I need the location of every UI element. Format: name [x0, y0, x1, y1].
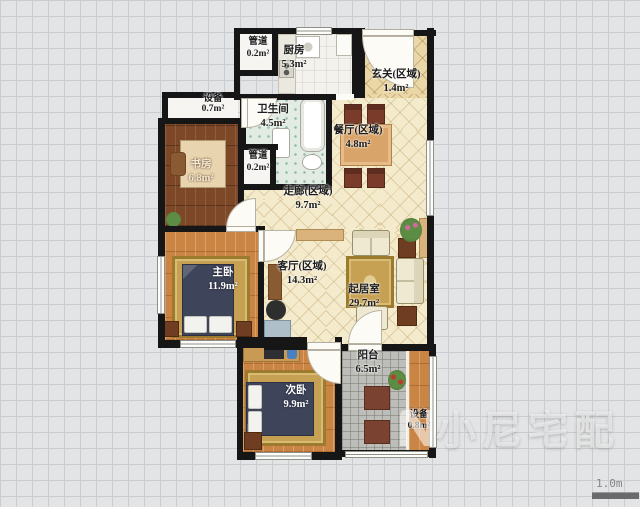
dining-chair — [367, 104, 385, 124]
wall — [237, 337, 243, 460]
balcony-plant — [388, 370, 406, 390]
room-name: 卫生间 — [248, 103, 298, 117]
room-label-balcony: 阳台 6.5m² — [346, 349, 390, 376]
watermark: 小尼宅配 — [394, 398, 620, 456]
room-label-living-room: 起居室 29.7m² — [338, 283, 390, 310]
room-label-bathroom: 卫生间 4.5m² — [248, 103, 298, 130]
window — [426, 140, 434, 216]
room-area: 4.5m² — [248, 117, 298, 131]
room-area: 14.3m² — [268, 274, 336, 288]
room-label-corridor: 走廊(区域) 9.7m² — [278, 185, 338, 212]
kitchen-cabinet — [336, 34, 352, 56]
room-area: 4.8m² — [328, 138, 388, 152]
master-pillow-right — [209, 316, 232, 333]
room-area: 6.5m² — [346, 363, 390, 377]
study-door-leaf — [226, 226, 256, 232]
room-name: 设备 — [190, 94, 236, 104]
room-area: 11.9m² — [198, 280, 248, 294]
sofa-two-seat — [352, 230, 390, 256]
watermark-logo-icon — [394, 406, 432, 448]
scale-label: 1.0m — [596, 477, 623, 490]
sofa-three-seat — [396, 258, 424, 304]
scale-bar — [592, 492, 639, 499]
room-label-master: 主卧 11.9m² — [198, 266, 248, 293]
flower-plant — [400, 218, 422, 242]
room-name: 餐厅(区域) — [328, 124, 388, 138]
room-area: 5.3m² — [270, 58, 318, 72]
room-name: 玄关(区域) — [362, 68, 430, 82]
master-door-leaf — [258, 230, 264, 262]
room-area: 9.7m² — [278, 199, 338, 213]
room-name: 客厅(区域) — [268, 260, 336, 274]
room-label-living-zone: 客厅(区域) 14.3m² — [268, 260, 336, 287]
room-area: 29.7m² — [338, 297, 390, 311]
wall — [264, 342, 307, 350]
wall — [160, 118, 244, 124]
nook-chair — [266, 300, 286, 320]
room-name: 管道 — [236, 150, 280, 162]
room-name: 厨房 — [270, 44, 318, 58]
room-label-dining: 餐厅(区域) 4.8m² — [328, 124, 388, 151]
room-area: 9.9m² — [272, 398, 320, 412]
window — [157, 256, 165, 314]
room-label-second: 次卧 9.9m² — [272, 384, 320, 411]
dining-chair — [367, 168, 385, 188]
floorplan-canvas: 管道 0.2m² 厨房 5.3m² 玄关(区域) 1.4m² 设备 0.7m² … — [0, 0, 640, 507]
room-area: 1.4m² — [362, 82, 430, 96]
room-name: 起居室 — [338, 283, 390, 297]
room-label-equipment-top: 设备 0.7m² — [190, 94, 236, 115]
second-door-leaf — [307, 342, 341, 350]
balcony-seat — [364, 386, 390, 410]
room-name: 书房 — [180, 158, 222, 172]
balcony-seat — [364, 420, 390, 444]
dining-chair — [344, 104, 362, 124]
master-pillow-left — [184, 316, 207, 333]
watermark-text: 小尼宅配 — [436, 398, 620, 456]
master-nightstand-right — [236, 321, 252, 337]
window — [180, 340, 236, 348]
room-label-kitchen: 厨房 5.3m² — [270, 44, 318, 71]
room-label-entry: 玄关(区域) 1.4m² — [362, 68, 430, 95]
room-label-study: 书房 6.8m² — [180, 158, 222, 185]
side-table — [397, 306, 417, 326]
dining-chair — [344, 168, 362, 188]
room-area: 6.8m² — [180, 172, 222, 186]
tv-bench — [296, 229, 344, 241]
room-area: 0.2m² — [236, 162, 280, 174]
room-area: 0.7m² — [190, 104, 236, 114]
study-plant — [166, 212, 181, 227]
second-wardrobe — [244, 432, 262, 450]
room-label-pipe-mid: 管道 0.2m² — [236, 150, 280, 175]
room-name: 主卧 — [198, 266, 248, 280]
master-nightstand-left — [163, 321, 179, 337]
kitchen-opening — [336, 94, 354, 100]
bathtub — [300, 98, 325, 152]
toilet — [302, 154, 322, 170]
window — [296, 27, 332, 35]
window — [255, 452, 312, 460]
second-pillow-top — [248, 385, 262, 409]
room-name: 阳台 — [346, 349, 390, 363]
room-name: 次卧 — [272, 384, 320, 398]
room-name: 走廊(区域) — [278, 185, 338, 199]
entry-door-leaf — [362, 29, 414, 36]
bathroom-door-leaf — [241, 98, 248, 128]
